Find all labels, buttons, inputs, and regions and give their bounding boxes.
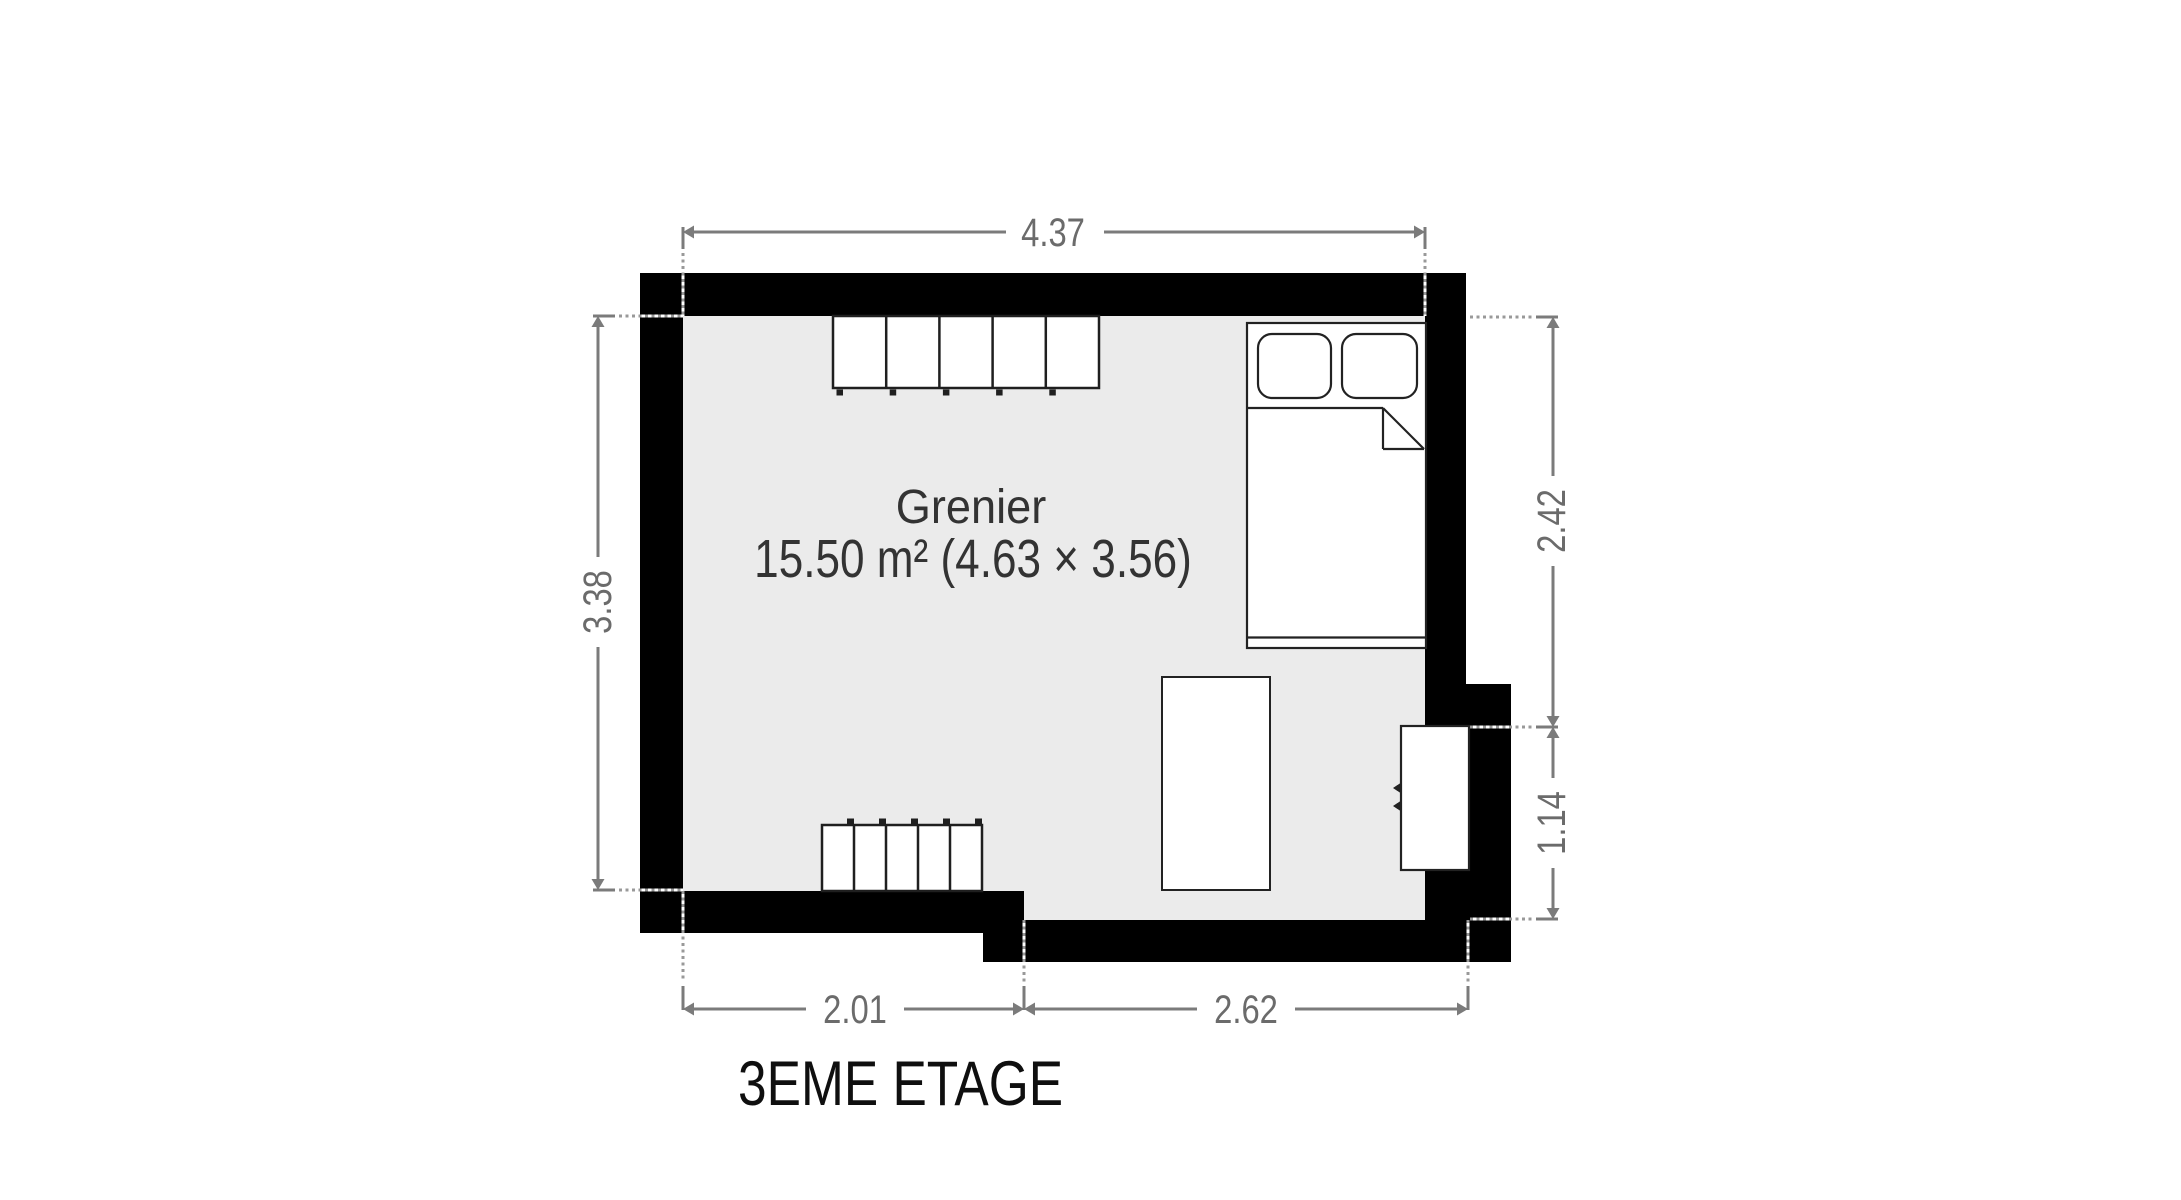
svg-text:2.01: 2.01 xyxy=(823,987,887,1032)
svg-text:4.37: 4.37 xyxy=(1021,210,1085,255)
svg-text:3EME ETAGE: 3EME ETAGE xyxy=(738,1049,1063,1119)
svg-text:2.62: 2.62 xyxy=(1214,987,1278,1032)
svg-text:3.38: 3.38 xyxy=(575,570,620,634)
svg-text:15.50 m² (4.63 × 3.56): 15.50 m² (4.63 × 3.56) xyxy=(754,529,1192,589)
svg-text:Grenier: Grenier xyxy=(896,480,1046,534)
svg-text:1.14: 1.14 xyxy=(1529,791,1574,855)
svg-text:2.42: 2.42 xyxy=(1529,489,1574,553)
